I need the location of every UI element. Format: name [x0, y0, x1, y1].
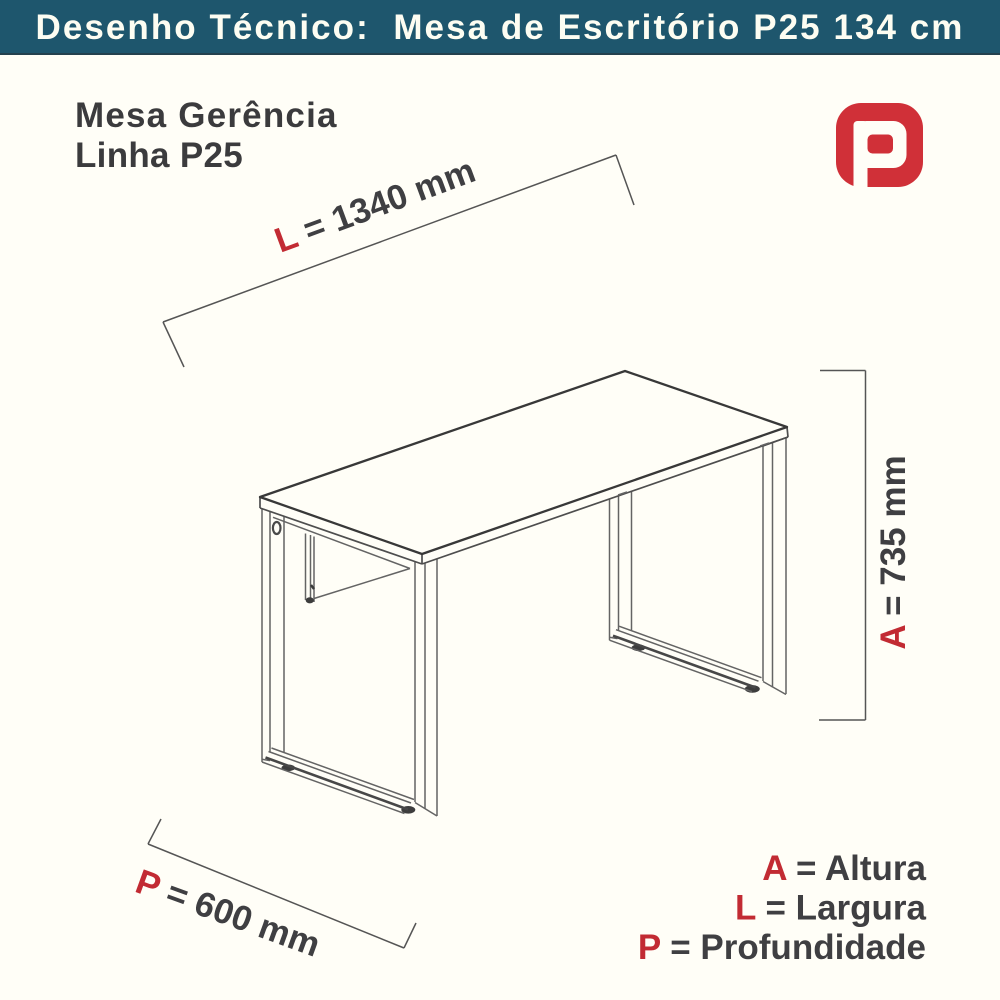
svg-text:P = 600 mm: P = 600 mm [131, 862, 326, 965]
svg-text:A = 735 mm: A = 735 mm [874, 455, 913, 649]
svg-text:P = Profundidade: P = Profundidade [638, 928, 926, 967]
svg-text:A = Altura: A = Altura [762, 849, 926, 888]
svg-text:L = Largura: L = Largura [735, 888, 926, 927]
